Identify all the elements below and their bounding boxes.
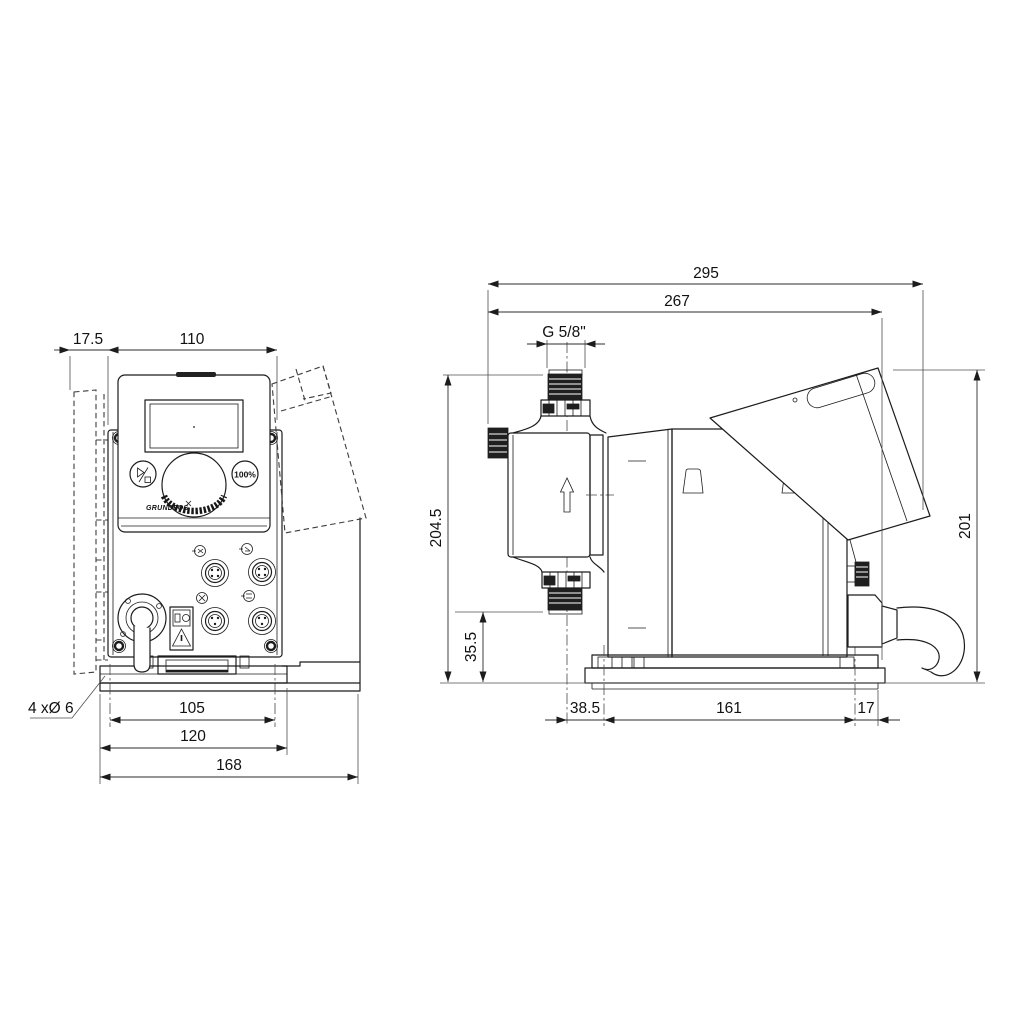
- pump-dimensional-drawing: 100% GRUNDFOS 17.5 110: [0, 0, 1024, 1024]
- dosing-head: [488, 428, 590, 557]
- cable-gland-front: [118, 594, 166, 672]
- dim-offset-left: 17.5: [54, 331, 108, 425]
- dim-inlet-height: 35.5: [455, 612, 543, 682]
- m12-connector: [202, 560, 229, 587]
- holes-callout: 4 xØ 6: [28, 676, 105, 718]
- svg-text:120: 120: [180, 728, 206, 745]
- dim-slot-pitch: 161: [604, 700, 855, 720]
- start-stop-button: [130, 461, 156, 487]
- hundred-percent-label: 100%: [234, 470, 256, 480]
- dim-rear-height: 201: [893, 370, 985, 682]
- m12-connector: [249, 559, 276, 586]
- dim-overall-width: 168: [100, 694, 358, 784]
- svg-text:G 5/8": G 5/8": [542, 324, 585, 341]
- brand-logo: GRUNDFOS: [146, 505, 188, 512]
- svg-text:17: 17: [857, 700, 874, 717]
- head-flange: [586, 435, 614, 555]
- m12-connector: [249, 608, 276, 635]
- dim-rear-offset: 17: [855, 690, 900, 726]
- svg-text:204.5: 204.5: [428, 509, 445, 548]
- control-panel: 100% GRUNDFOS: [118, 372, 270, 532]
- side-housing-front: [282, 518, 360, 683]
- wall-plate-phantom: [74, 390, 108, 674]
- dim-head-offset: 38.5: [545, 700, 604, 720]
- svg-text:168: 168: [216, 757, 242, 774]
- svg-text:201: 201: [957, 513, 974, 539]
- suction-fitting: [513, 557, 604, 614]
- connector-grid: [192, 544, 276, 635]
- svg-text:161: 161: [716, 700, 742, 717]
- din-rail-clip: [144, 656, 249, 674]
- screw-icon: [265, 640, 278, 653]
- discharge-fitting: [513, 370, 606, 433]
- front-view: 100% GRUNDFOS 17.5 110: [28, 331, 366, 784]
- priming-knob: [488, 428, 508, 458]
- rear-connector: [847, 562, 869, 586]
- vent-slot: [683, 469, 703, 493]
- m12-connector: [202, 608, 229, 635]
- svg-text:267: 267: [664, 293, 690, 310]
- side-view: 295 267 G 5/8" 204.5 35.5 201: [428, 265, 985, 726]
- svg-text:35.5: 35.5: [463, 632, 480, 662]
- hood-phantom-front: [272, 366, 366, 533]
- svg-text:17.5: 17.5: [73, 331, 103, 348]
- svg-text:4 xØ 6: 4 xØ 6: [28, 700, 74, 717]
- dimensional-drawing-page: 100% GRUNDFOS 17.5 110: [0, 0, 1024, 1024]
- svg-text:38.5: 38.5: [570, 700, 600, 717]
- warning-label: [170, 607, 193, 650]
- dim-thread: G 5/8": [527, 324, 605, 368]
- panel-top-tab: [176, 372, 216, 377]
- svg-text:105: 105: [179, 700, 205, 717]
- mains-cable: [848, 595, 964, 676]
- screw-icon: [113, 640, 126, 653]
- svg-text:295: 295: [693, 265, 719, 282]
- hood-side: [710, 368, 930, 562]
- hundred-percent-button: 100%: [232, 461, 258, 487]
- svg-text:110: 110: [180, 331, 205, 348]
